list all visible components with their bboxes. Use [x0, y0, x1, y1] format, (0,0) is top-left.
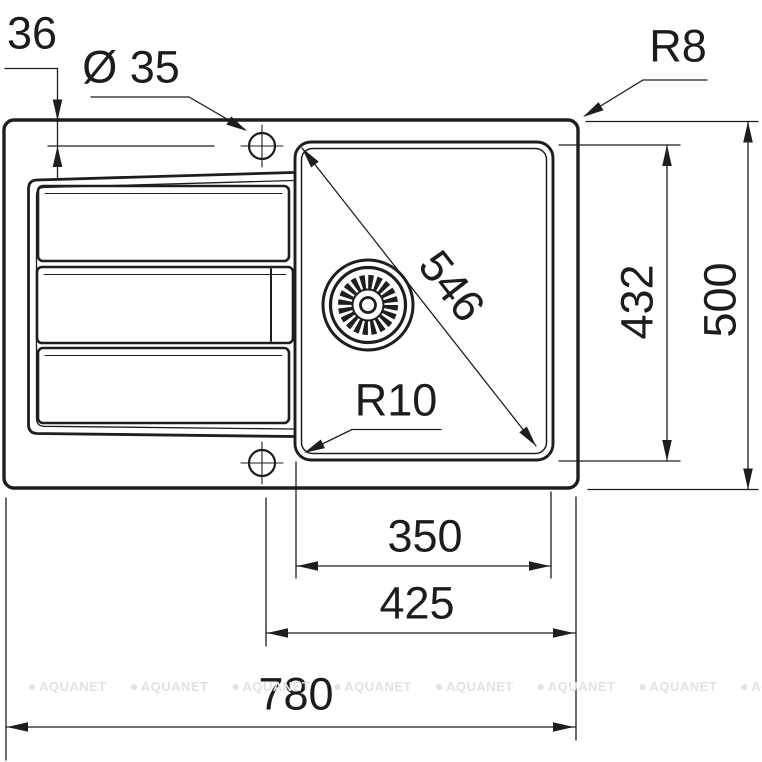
- watermark-logo-icon: ●: [130, 679, 139, 693]
- drainboard-rib-2: [37, 267, 293, 343]
- watermark-logo-icon: ●: [537, 679, 546, 693]
- dim-label-bowl-length: 432: [615, 264, 660, 339]
- watermark-logo-icon: ●: [333, 679, 342, 693]
- watermark: ●AQUANET: [333, 679, 412, 694]
- drainboard-rib-3: [38, 348, 289, 423]
- watermark: ●AQUANET: [130, 679, 209, 694]
- watermark-label: AQUANET: [649, 679, 717, 694]
- drain-strainer-icon: [323, 260, 413, 350]
- watermark: ●AQUANET: [639, 679, 718, 694]
- dim-label-overall-depth: 500: [698, 262, 743, 337]
- dim-tap-hole-diameter-35: [91, 97, 249, 135]
- watermark-row: ●AQUANET ●AQUANET ●AQUANET ●AQUANET ●AQU…: [0, 676, 762, 696]
- dim-label-bowl-corner-radius: R10: [355, 378, 438, 423]
- dim-label-drain-to-edge: 425: [379, 581, 454, 626]
- watermark: ●AQUANET: [435, 679, 514, 694]
- dim-outer-corner-radius-r8: [581, 80, 707, 121]
- dim-label-tap-offset: 36: [7, 11, 57, 56]
- drainboard: [29, 173, 294, 437]
- dim-label-bowl-width: 350: [387, 514, 462, 559]
- watermark: ●AQUANET: [740, 679, 762, 694]
- watermark-label: AQUANET: [141, 679, 209, 694]
- watermark-label: AQUANET: [39, 679, 107, 694]
- watermark-logo-icon: ●: [232, 679, 241, 693]
- watermark-label: AQUANET: [242, 679, 310, 694]
- watermark-logo-icon: ●: [28, 679, 37, 693]
- watermark: ●AQUANET: [28, 679, 107, 694]
- drainboard-rib-1: [38, 186, 289, 261]
- technical-drawing-canvas: 36 Ø 35 R8 546 432 500 R10 350 425 780 ●…: [0, 0, 762, 762]
- faucet-hole-top-icon: [241, 125, 283, 167]
- watermark-label: AQUANET: [446, 679, 514, 694]
- faucet-hole-bottom-icon: [241, 442, 283, 484]
- watermark-label: AQUANET: [751, 679, 762, 694]
- watermark-logo-icon: ●: [435, 679, 444, 693]
- watermark-label: AQUANET: [344, 679, 412, 694]
- watermark: ●AQUANET: [232, 679, 311, 694]
- dim-overall-width-780: [6, 498, 575, 760]
- watermark: ●AQUANET: [537, 679, 616, 694]
- watermark-label: AQUANET: [548, 679, 616, 694]
- watermark-logo-icon: ●: [639, 679, 648, 693]
- dim-label-tap-hole-diameter: Ø 35: [82, 45, 180, 90]
- watermark-logo-icon: ●: [740, 679, 749, 693]
- dim-label-outer-corner-radius: R8: [649, 24, 707, 69]
